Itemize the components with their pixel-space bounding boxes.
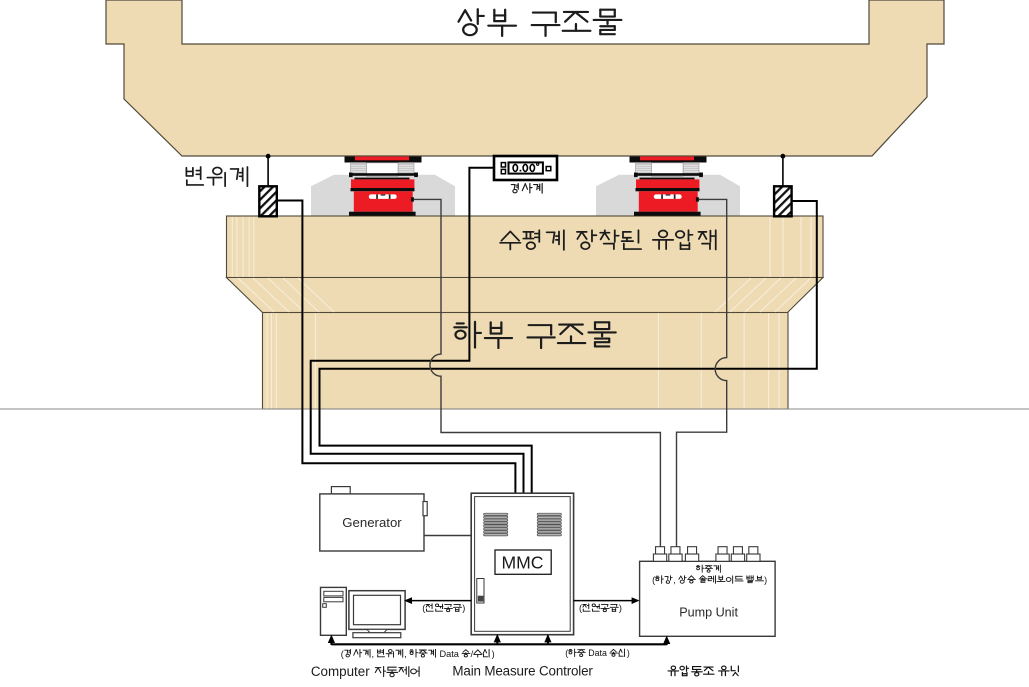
svg-text:): ) [619,603,622,613]
svg-text:): ) [462,603,465,613]
svg-text:Data: Data [440,649,460,659]
svg-text:Data: Data [588,648,607,658]
svg-text:,: , [404,649,407,659]
svg-text:(: ( [579,603,582,613]
svg-text:(: ( [652,575,655,585]
svg-text:(: ( [565,648,568,658]
svg-text:): ) [764,575,767,585]
svg-text:(: ( [341,649,344,659]
svg-text:MMC: MMC [501,552,543,572]
svg-text:,: , [372,649,375,659]
svg-text:): ) [492,649,495,659]
svg-text:,: , [673,575,676,585]
svg-text:Generator: Generator [342,515,402,530]
svg-text:): ) [627,648,630,658]
svg-text:Main Measure Controler: Main Measure Controler [452,664,593,679]
svg-text:Pump Unit: Pump Unit [679,606,738,620]
svg-text:(: ( [422,603,425,613]
svg-text:/: / [471,649,474,659]
svg-text:Computer: Computer [311,664,370,679]
